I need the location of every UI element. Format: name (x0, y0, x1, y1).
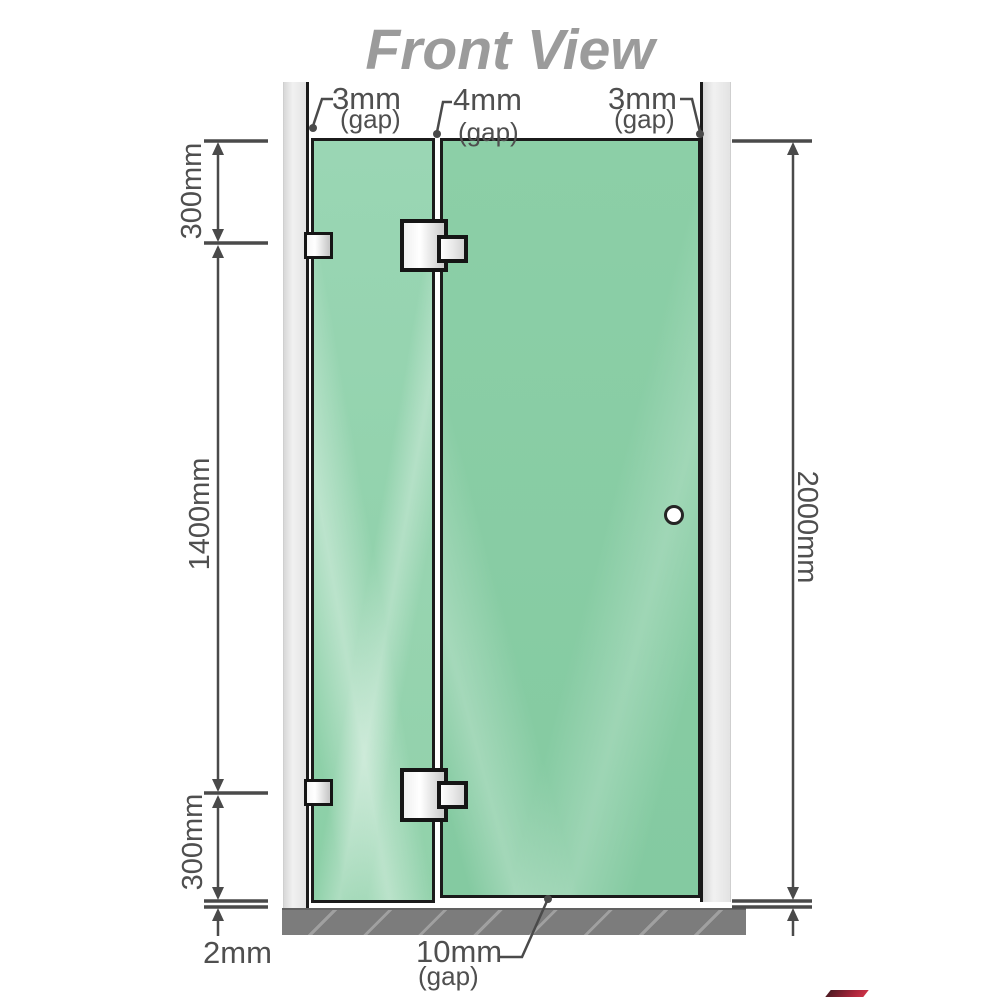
diagram-canvas: Front View (0, 0, 1000, 1000)
door-glass-panel (440, 138, 701, 898)
label-gap-right-unit: (gap) (614, 106, 675, 132)
hinge-top-small-plate (437, 235, 468, 263)
label-gap-middle-value: 4mm (453, 84, 522, 115)
label-top-offset: 300mm (176, 121, 208, 261)
label-total-height: 2000mm (791, 457, 823, 597)
label-middle-span: 1400mm (184, 444, 216, 584)
watermark-fragment (825, 990, 868, 997)
right-wall (700, 82, 731, 902)
label-door-bottom-gap-unit: (gap) (418, 963, 479, 989)
floor-base (282, 908, 746, 935)
hinge-bottom-small-plate (437, 781, 468, 809)
wall-bracket-bottom (304, 779, 333, 806)
label-floor-clearance: 2mm (203, 937, 272, 968)
label-bottom-offset: 300mm (177, 772, 209, 912)
diagram-title: Front View (260, 20, 760, 82)
label-gap-left-unit: (gap) (340, 106, 401, 132)
wall-bracket-top (304, 232, 333, 259)
door-handle (664, 505, 684, 525)
label-gap-middle-unit: (gap) (458, 119, 519, 145)
